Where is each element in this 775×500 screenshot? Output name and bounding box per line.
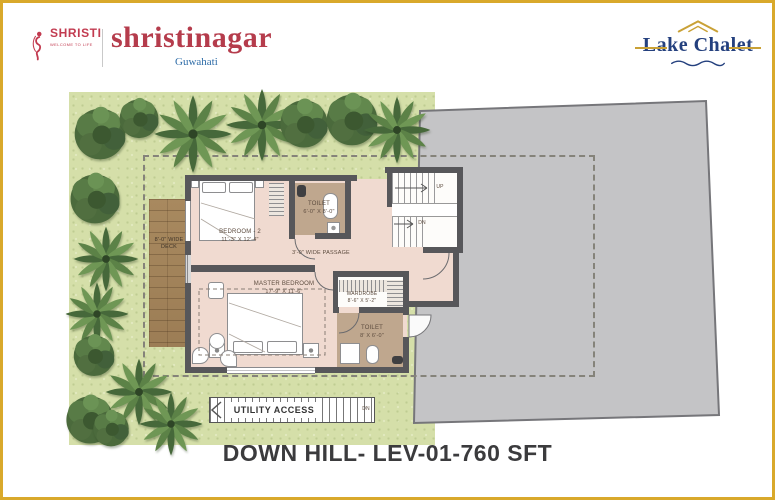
fan-chair (192, 347, 209, 364)
deck-label: 8'-0" WIDE DECK (155, 237, 184, 251)
wall (385, 167, 463, 173)
chalet-roof-icon (676, 17, 720, 34)
round-tree-icon (65, 169, 125, 227)
plan-title: DOWN HILL- LEV-01-760 SFT (3, 440, 772, 467)
utility-access-label: UTILITY ACCESS (227, 402, 321, 418)
gold-rule-left (635, 47, 667, 49)
wall (359, 307, 405, 313)
wardrobe-label: WARDROBE 8'-6" X 5'-2" (347, 291, 378, 304)
window-south (227, 367, 315, 374)
deck-slider-door (185, 255, 191, 283)
wall (185, 175, 191, 201)
wall (185, 283, 191, 373)
wall (387, 167, 392, 207)
window-west (185, 201, 191, 241)
passage-label: 3'-0" WIDE PASSAGE (292, 250, 350, 257)
wave-icon (670, 58, 726, 67)
wardrobe-shelf-column (387, 280, 403, 310)
bedroom2-label: BEDROOM - 2 11'-3" X 12'-4" (219, 229, 261, 244)
stair-landing (392, 203, 457, 217)
toilet-bottom-label: TOILET 8' X 6'-0" (360, 325, 384, 340)
nightstand (303, 343, 319, 358)
wall (345, 179, 351, 239)
stairs-up-label: UP (436, 184, 443, 191)
wall (333, 307, 339, 313)
pillow (202, 182, 226, 193)
deck-area (149, 199, 189, 347)
gold-rule-right (729, 47, 761, 49)
utility-down-label: DN (362, 406, 370, 413)
project-name: shristinagar (111, 21, 272, 55)
brand-name: Lake Chalet (631, 34, 765, 57)
wc (297, 185, 306, 197)
fan-chair (220, 350, 237, 367)
header-divider (102, 29, 103, 67)
shower (340, 343, 360, 364)
shristi-figure-icon (31, 27, 46, 65)
master-bedroom-label: MASTER BEDROOM 17'-9" X 11'-6" (254, 281, 314, 296)
washbasin (392, 356, 403, 364)
wall (333, 271, 409, 277)
toilet-top-label: TOILET 6'-0" X 8'-0" (303, 201, 334, 216)
wall (315, 367, 409, 373)
shristi-logo: SHRISTI WELCOME TO LIFE (31, 27, 102, 65)
shristi-tagline: WELCOME TO LIFE (50, 42, 102, 47)
wall (185, 241, 191, 255)
brochure-page: SHRISTI WELCOME TO LIFE shristinagar Guw… (0, 0, 775, 500)
wall (453, 253, 459, 307)
wall (457, 167, 463, 253)
lake-chalet-logo: Lake Chalet (631, 17, 765, 67)
pillow (233, 341, 263, 353)
palm-tree-icon (359, 93, 435, 167)
bedroom2-closet (269, 183, 284, 216)
pillow (267, 341, 297, 353)
armchair (208, 282, 224, 299)
pillow (229, 182, 253, 193)
wc (366, 345, 379, 364)
wall (185, 367, 227, 373)
wall (407, 301, 453, 307)
stairs-down-label: DN (418, 220, 426, 227)
wall (289, 233, 295, 239)
project-city: Guwahati (175, 56, 218, 68)
shristi-wordmark: SHRISTI (50, 27, 102, 39)
wall (289, 179, 295, 239)
round-table (209, 333, 225, 349)
stair-flight-upper (392, 173, 438, 203)
wall (185, 265, 315, 272)
